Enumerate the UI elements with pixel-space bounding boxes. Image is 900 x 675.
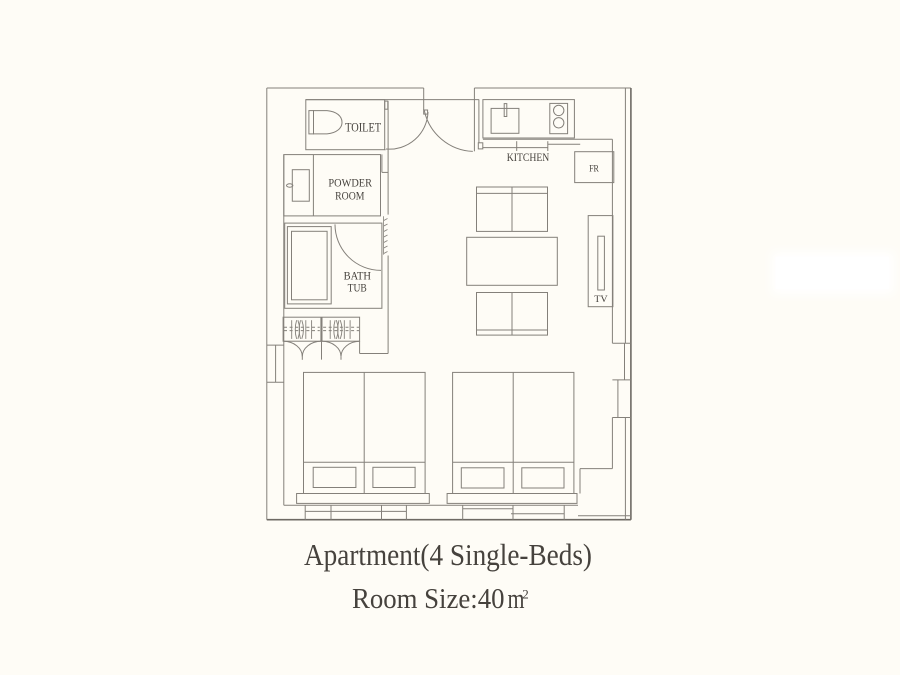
svg-text:TV: TV — [594, 295, 608, 305]
svg-text:KITCHEN: KITCHEN — [507, 152, 550, 164]
svg-text:TOILET: TOILET — [345, 121, 381, 135]
svg-text:ROOM: ROOM — [335, 188, 365, 202]
svg-text:POWDER: POWDER — [328, 175, 372, 189]
svg-text:TUB: TUB — [348, 281, 367, 295]
svg-text:Room Size:40: Room Size:40 — [352, 584, 505, 615]
svg-text:FR: FR — [589, 163, 600, 173]
svg-text:2: 2 — [522, 587, 529, 602]
svg-text:Apartment(4 Single-Beds): Apartment(4 Single-Beds) — [304, 537, 592, 572]
